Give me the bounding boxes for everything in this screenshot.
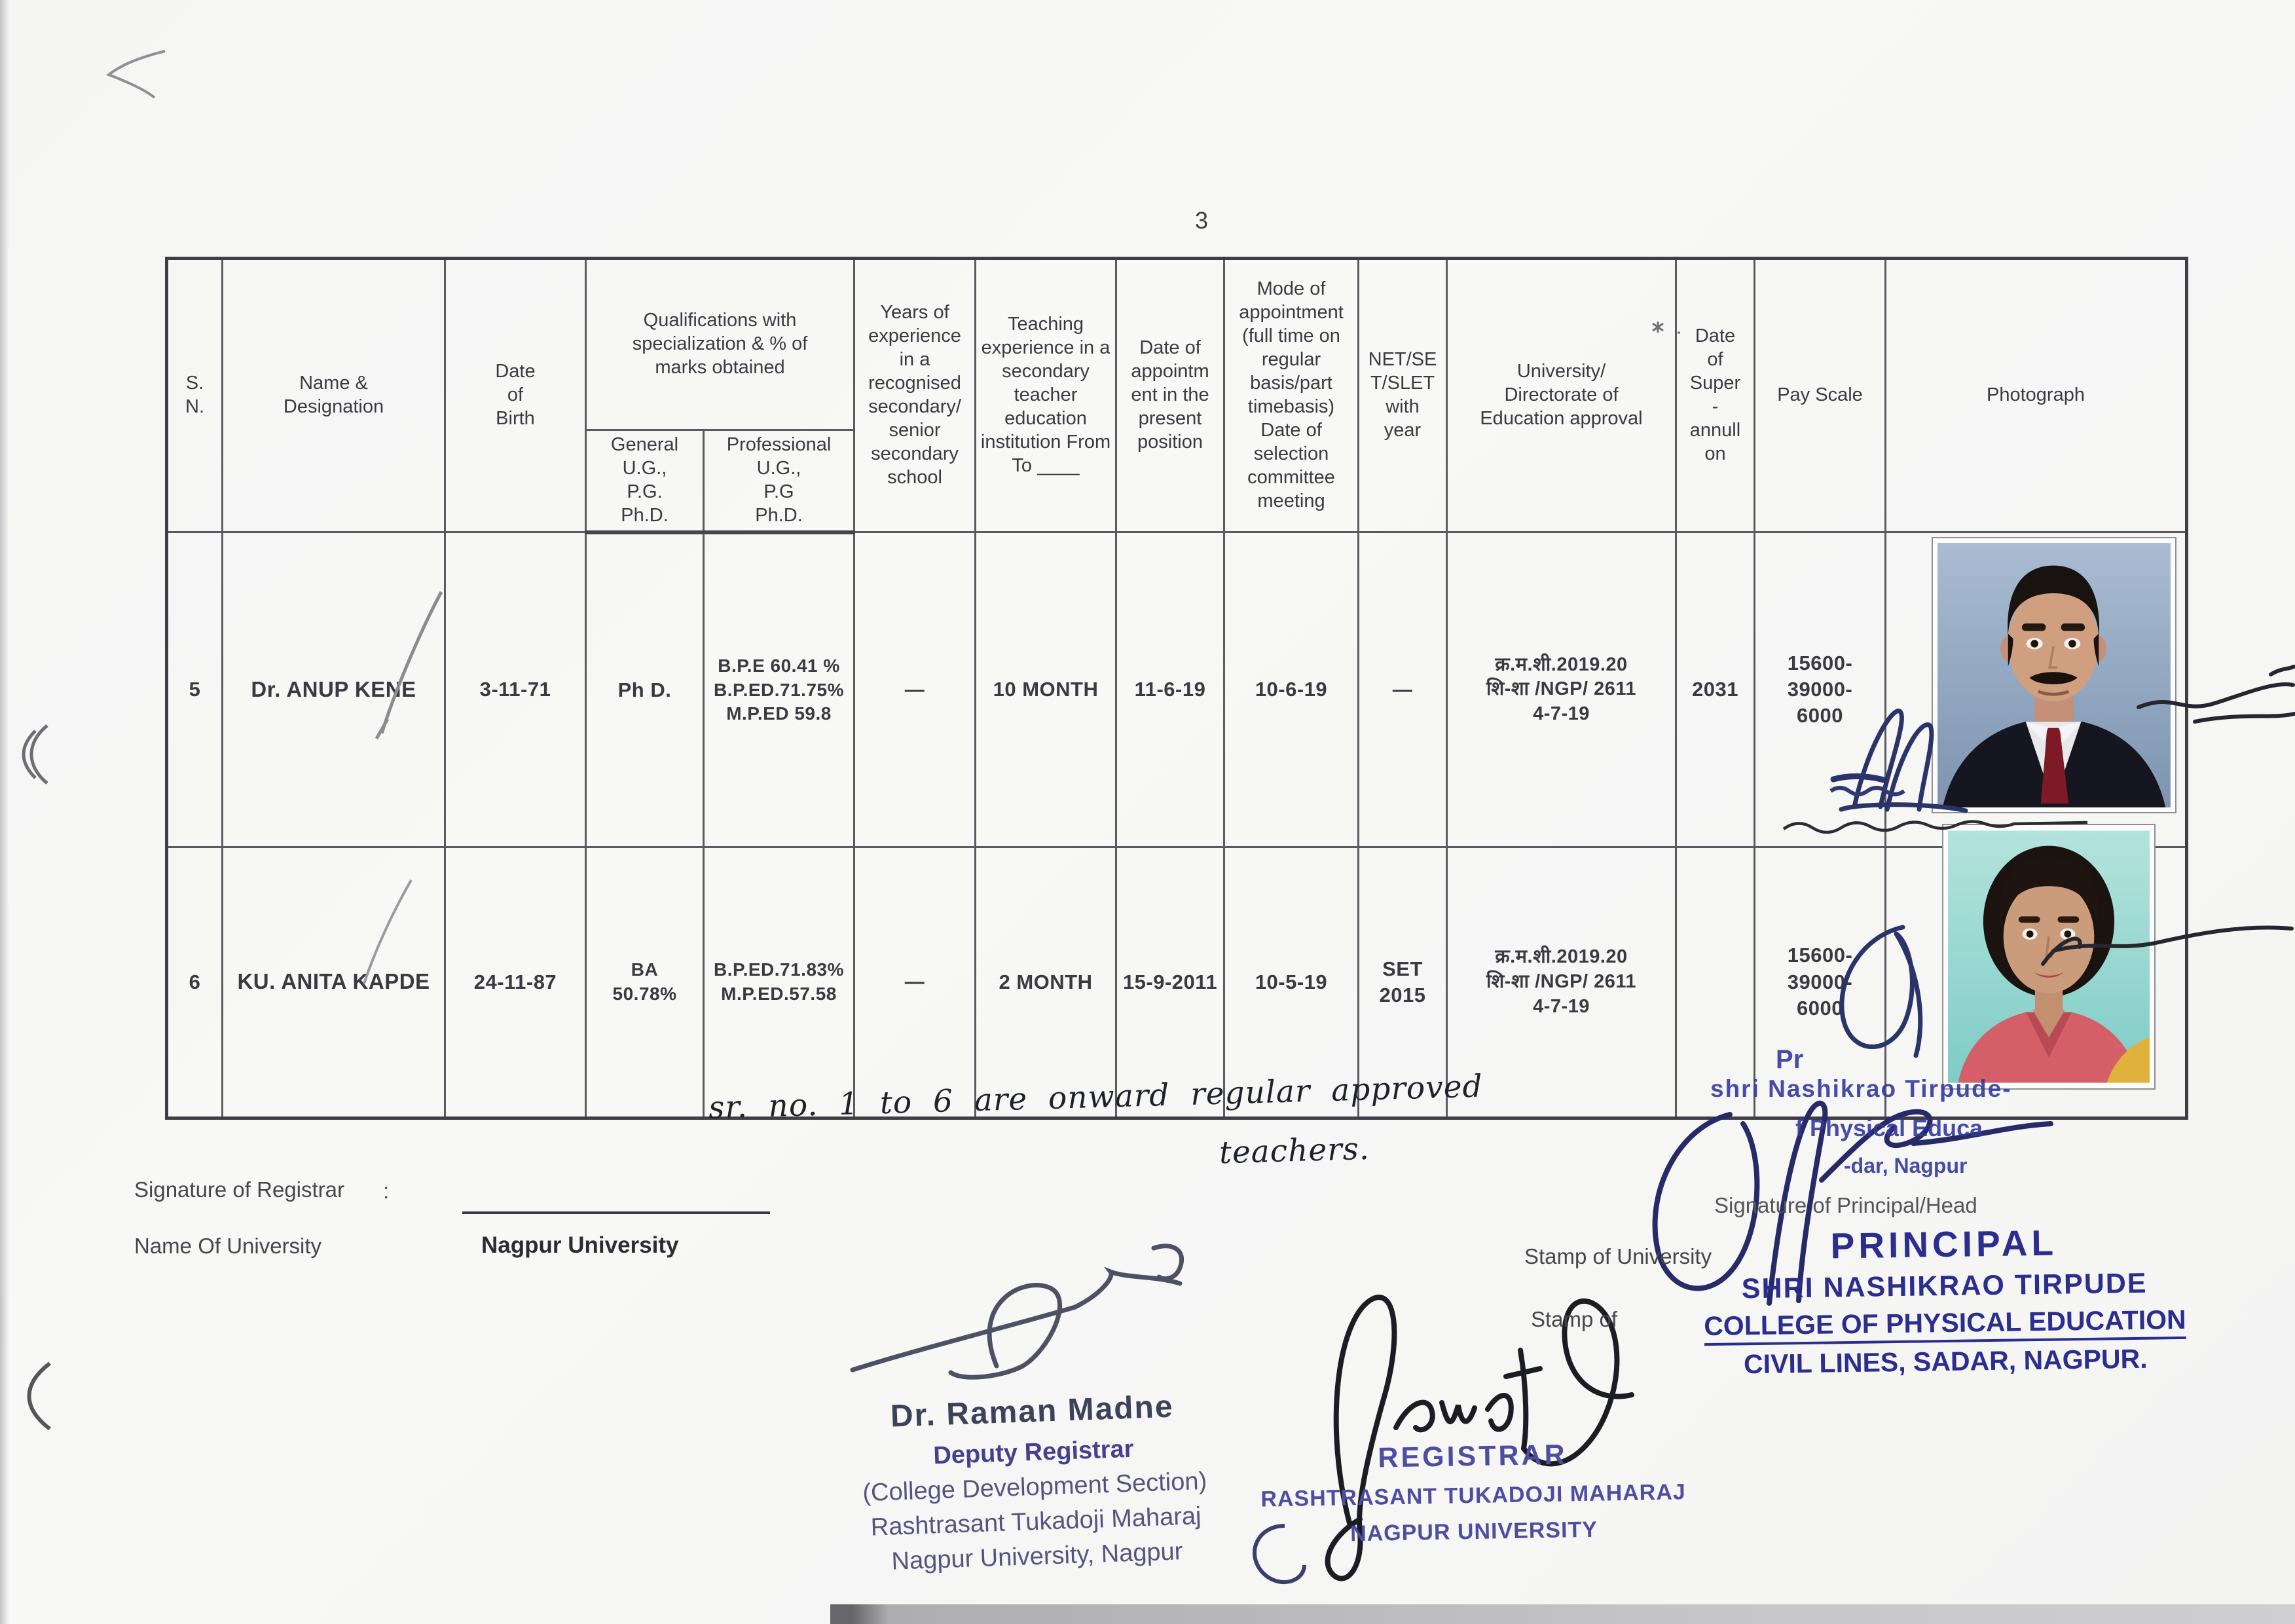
partial-stamp-fragment-tirpude: shri Nashikrao Tirpude- (1710, 1075, 2012, 1103)
page-number: 3 (1179, 207, 1224, 234)
row5-teaching-experience: 10 MONTH (976, 532, 1116, 847)
handwritten-note-line2: teachers. (1219, 1131, 1370, 1171)
col-header-pay-scale: Pay Scale (1755, 259, 1886, 532)
row5-dob: 3-11-71 (445, 532, 586, 847)
row5-superannuation: 2031 (1676, 532, 1755, 847)
col-header-university-approval: University/ Directorate of Education app… (1447, 259, 1676, 532)
photo-anup-kene (1933, 538, 2175, 812)
col-header-date-of-birth: Date of Birth (445, 259, 586, 532)
man-portrait-image (1937, 543, 2171, 807)
col-header-superannuation: Date of Super - annull on (1676, 259, 1755, 532)
col-header-photograph: Photograph (1886, 259, 2187, 532)
partial-stamp-fragment-nagpur: -dar, Nagpur (1844, 1154, 1967, 1178)
registrar-stamp: REGISTRAR RASHTRASANT TUKADOJI MAHARAJ N… (1243, 1437, 1704, 1549)
signature-of-registrar-label: Signature of Registrar (134, 1177, 344, 1202)
scan-left-edge-shadow (0, 0, 9, 1624)
registrar-signature-line (462, 1211, 770, 1214)
principal-stamp: PRINCIPAL SHRI NASHIKRAO TIRPUDE COLLEGE… (1623, 1219, 2266, 1382)
partial-stamp-fragment-pr: Pr (1776, 1045, 1803, 1075)
signature-of-principal-label: Signature of Principal/Head (1714, 1193, 1977, 1218)
registrar-stamp-org1: RASHTRASANT TUKADOJI MAHARAJ (1244, 1479, 1703, 1513)
name-of-university-label: Name Of University (134, 1234, 321, 1259)
deputy-registrar-stamp: Dr. Raman Madne Deputy Registrar (Colleg… (750, 1384, 1319, 1581)
principal-stamp-title: PRINCIPAL (1623, 1219, 2265, 1270)
pencil-mark-topleft (109, 51, 165, 98)
row5-date-of-appointment: 11-6-19 (1116, 532, 1224, 847)
row5-university-approval: क्र.म.शी.2019.20 शि-शा /NGP/ 2611 4-7-19 (1447, 532, 1676, 847)
col-header-date-of-appointment: Date of appointm ent in the present posi… (1116, 259, 1224, 532)
col-header-professional-qualification: Professional U.G., P.G Ph.D. (704, 430, 854, 532)
row5-pay-scale: 15600- 39000- 6000 (1755, 532, 1886, 847)
row5-years-experience: — (854, 532, 976, 847)
photo-anita-kapde (1943, 825, 2154, 1088)
row6-general-qualification: BA 50.78% (586, 847, 704, 1118)
scan-bottom-strip (830, 1604, 2295, 1624)
col-header-general-qualification: General U.G., P.G. Ph.D. (586, 430, 704, 532)
scanned-document-page: 3 S. N. Name & Designation Date of Birth… (0, 0, 2295, 1624)
col-header-mode-of-appointment: Mode of appointment (full time on regula… (1224, 259, 1359, 532)
left-margin-marks-upper (24, 726, 47, 783)
deputy-registrar-signature (853, 1246, 1182, 1377)
col-header-qualifications: Qualifications with specialization & % o… (586, 259, 854, 430)
col-header-name-designation: Name & Designation (223, 259, 445, 532)
signature-of-registrar-colon: : (383, 1179, 389, 1204)
col-header-teaching-experience: Teaching experience in a secondary teach… (976, 259, 1116, 532)
col-header-years-experience: Years of experience in a recognised seco… (854, 259, 976, 532)
col-header-net-slet: NET/SE T/SLET with year (1359, 259, 1447, 532)
row6-name: KU. ANITA KAPDE (223, 847, 445, 1118)
row5-sn: 5 (167, 532, 223, 847)
deputy-registrar-name: Dr. Raman Madne (750, 1384, 1314, 1439)
principal-stamp-line2: COLLEGE OF PHYSICAL EDUCATION (1704, 1304, 2186, 1346)
left-margin-mark-lower (29, 1363, 50, 1429)
col-header-sn: S. N. (167, 259, 223, 532)
teacher-approval-table: S. N. Name & Designation Date of Birth Q… (165, 257, 2188, 1120)
row5-mode-of-appointment: 10-6-19 (1224, 532, 1359, 847)
stamp-of-label: Stamp of (1531, 1307, 1617, 1332)
row5-net-slet: — (1359, 532, 1447, 847)
row5-name: Dr. ANUP KENE (223, 532, 445, 847)
row6-teaching-experience: 2 MONTH (976, 847, 1116, 1118)
row6-dob: 24-11-87 (445, 847, 586, 1118)
row6-professional-qualification: B.P.ED.71.83% M.P.ED.57.58 (704, 847, 854, 1118)
row5-professional-qualification: B.P.E 60.41 % B.P.ED.71.75% M.P.ED 59.8 (704, 532, 854, 847)
row5-general-qualification: Ph D. (586, 532, 704, 847)
row6-sn: 6 (167, 847, 223, 1118)
registrar-stamp-org2: NAGPUR UNIVERSITY (1245, 1515, 1704, 1549)
row6-years-experience: — (854, 847, 976, 1118)
principal-stamp-line3: CIVIL LINES, SADAR, NAGPUR. (1625, 1342, 2267, 1382)
partial-stamp-fragment-physical-education: f Physical Educa (1795, 1115, 1983, 1142)
woman-portrait-image (1948, 830, 2150, 1084)
university-name-value: Nagpur University (481, 1232, 678, 1259)
